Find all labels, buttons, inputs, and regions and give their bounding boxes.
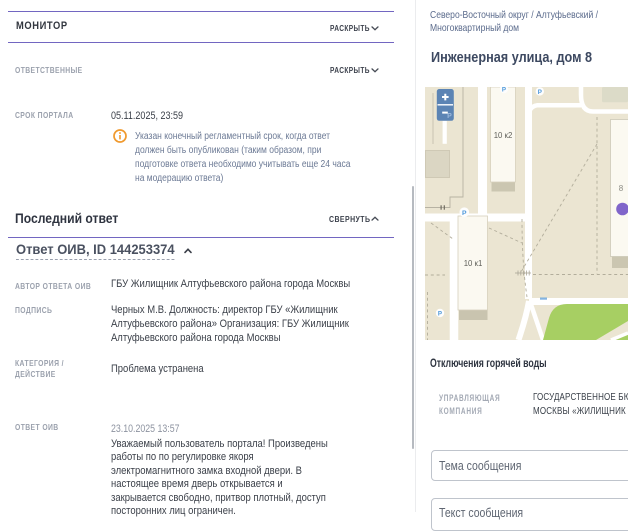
svg-text:P: P: [538, 89, 542, 96]
svg-text:P: P: [438, 311, 442, 318]
svg-text:8: 8: [619, 184, 624, 193]
svg-text:P: P: [447, 113, 452, 120]
svg-text:10 к2: 10 к2: [494, 131, 513, 140]
svg-text:10 к1: 10 к1: [464, 259, 483, 268]
svg-text:P: P: [462, 210, 467, 217]
svg-text:P: P: [502, 87, 506, 94]
